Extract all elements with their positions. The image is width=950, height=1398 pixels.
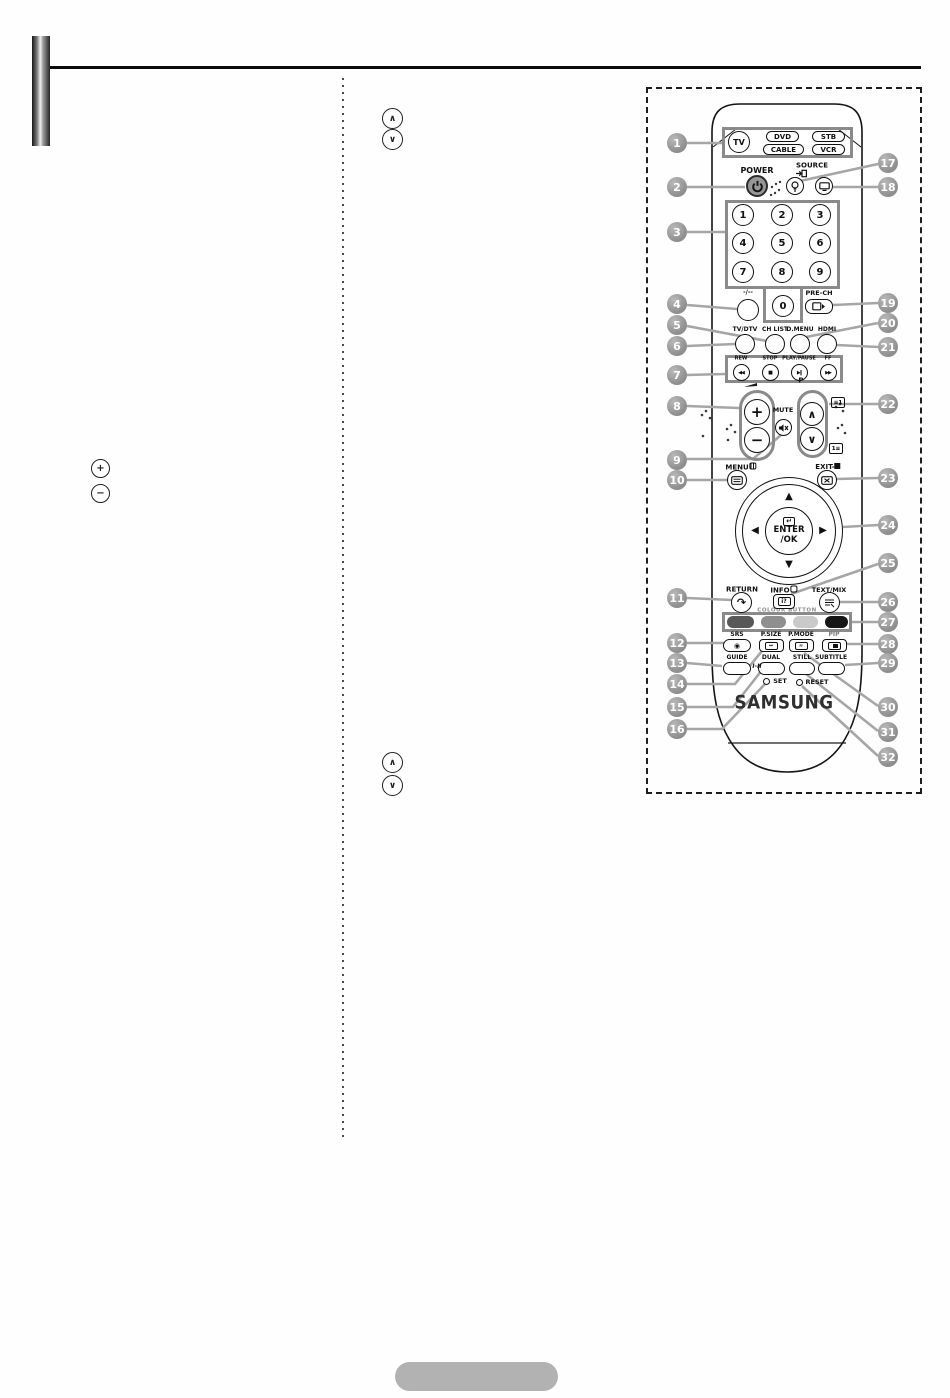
callout-24: 24: [878, 515, 898, 535]
callout-20: 20: [878, 313, 898, 333]
transport-button-rew[interactable]: ◀◀: [733, 364, 750, 381]
colour-button-3[interactable]: [825, 616, 848, 628]
return-button[interactable]: ↷: [731, 592, 752, 613]
set-label: SET: [773, 678, 787, 685]
mute-button[interactable]: [775, 419, 792, 436]
callout-16: 16: [667, 719, 687, 739]
dpad-left-icon[interactable]: ◀: [751, 526, 759, 536]
callout-13: 13: [667, 653, 687, 673]
dash-label: -/--: [743, 290, 753, 296]
manual-page: ∧ ∨ ∧ ∨ + −: [0, 0, 950, 1398]
fn1-label-3: PIP: [828, 632, 839, 638]
mode-label-3: HDMI: [818, 327, 836, 333]
source-label: SOURCE: [796, 163, 828, 178]
set-hole[interactable]: [763, 678, 770, 685]
source-button[interactable]: [815, 177, 833, 195]
channel-down-button[interactable]: ∨: [800, 427, 824, 451]
callout-1: 1: [667, 133, 687, 153]
fn-button-srs[interactable]: ◉: [723, 639, 751, 652]
digit-6-button[interactable]: 6: [809, 232, 831, 254]
callout-3: 3: [667, 222, 687, 242]
colour-button-2[interactable]: [793, 616, 818, 628]
fn-button-p-mode[interactable]: ≈: [789, 639, 814, 652]
menu-screen-icon: [731, 476, 743, 485]
fn2-label-2: STILL: [793, 655, 811, 661]
mode-button-ch-list[interactable]: [765, 334, 785, 354]
samsung-logo: SAMSUNG: [734, 694, 833, 712]
info-screen-icon: i?: [778, 597, 791, 606]
digit-8-button[interactable]: 8: [771, 261, 793, 283]
callout-32: 32: [878, 747, 898, 767]
pre-ch-label: PRE-CH: [805, 290, 832, 297]
device-button-cable[interactable]: CABLE: [763, 144, 804, 155]
mode-button-d-menu[interactable]: [790, 334, 810, 354]
teletext-mix-icon: [824, 598, 835, 608]
callout-19: 19: [878, 293, 898, 313]
device-button-dvd[interactable]: DVD: [766, 131, 799, 142]
page-index-teletext-icon: 1≡: [829, 443, 843, 454]
colour-button-0[interactable]: [727, 616, 754, 628]
callout-26: 26: [878, 592, 898, 612]
callout-10: 10: [667, 470, 687, 490]
callout-11: 11: [667, 588, 687, 608]
fn-button-pip[interactable]: [822, 639, 847, 652]
dpad-up-icon[interactable]: ▲: [785, 492, 793, 502]
info-page-icon: [791, 586, 798, 593]
dash-button[interactable]: [737, 299, 759, 321]
exit-box-icon: [835, 463, 841, 469]
pre-ch-button[interactable]: [805, 299, 833, 314]
transport-label-3: FF: [825, 357, 832, 362]
digit-2-button[interactable]: 2: [771, 204, 793, 226]
power-icon: [751, 180, 764, 193]
text-mix-button[interactable]: [819, 592, 840, 613]
callout-30: 30: [878, 697, 898, 717]
p-mode-icon: ≈: [795, 642, 808, 650]
page-up-teletext-icon: ≡1: [831, 397, 845, 408]
volume-up-button[interactable]: +: [744, 399, 770, 425]
callout-23: 23: [878, 468, 898, 488]
exit-screen-icon: [821, 476, 833, 485]
source-screen-icon: [819, 182, 830, 191]
callout-18: 18: [878, 177, 898, 197]
digit-4-button[interactable]: 4: [732, 232, 754, 254]
fn-button-p-size[interactable]: ↔: [759, 639, 784, 652]
dual-icon-label: I-II: [752, 664, 761, 670]
callout-28: 28: [878, 634, 898, 654]
callout-14: 14: [667, 674, 687, 694]
transport-label-2: PLAY/PAUSE: [782, 357, 816, 362]
callout-21: 21: [878, 337, 898, 357]
dpad-right-icon[interactable]: ▶: [819, 526, 827, 536]
channel-p-label: P: [798, 378, 803, 385]
fn2-label-1: DUAL: [762, 655, 780, 661]
pip-icon: [828, 642, 841, 650]
bulb-icon: [790, 181, 800, 192]
colour-button-1[interactable]: [761, 616, 786, 628]
menu-bars-icon: [750, 463, 757, 470]
mode-label-1: CH LIST: [762, 327, 788, 333]
power-label: POWER: [740, 167, 773, 175]
callout-4: 4: [667, 294, 687, 314]
illumination-button[interactable]: [786, 177, 804, 195]
tv-mode-button[interactable]: TV: [728, 131, 750, 153]
callout-12: 12: [667, 633, 687, 653]
exit-button[interactable]: [817, 470, 837, 490]
source-arrow-icon: [796, 170, 807, 178]
transport-button-stop[interactable]: ■: [762, 364, 779, 381]
enter-ok-button[interactable]: ↵ ENTER /OK: [765, 507, 813, 555]
digit-7-button[interactable]: 7: [732, 261, 754, 283]
channel-up-button[interactable]: ∧: [800, 402, 824, 426]
callout-22: 22: [878, 394, 898, 414]
callout-7: 7: [667, 365, 687, 385]
menu-button[interactable]: [727, 470, 747, 490]
digit-1-button[interactable]: 1: [732, 204, 754, 226]
power-button[interactable]: [746, 175, 768, 197]
callout-29: 29: [878, 653, 898, 673]
fn2-label-3: SUBTITLE: [815, 655, 847, 661]
dpad-down-icon[interactable]: ▼: [785, 560, 793, 570]
fn-button-subtitle[interactable]: [818, 662, 845, 675]
callout-6: 6: [667, 336, 687, 356]
reset-hole[interactable]: [796, 679, 803, 686]
mode-label-2: D.MENU: [786, 327, 813, 333]
info-button[interactable]: i?: [773, 594, 795, 609]
fn1-label-1: P.SIZE: [761, 632, 782, 638]
callout-8: 8: [667, 396, 687, 416]
fn2-label-0: GUIDE: [726, 655, 747, 661]
enter-label-line2: /OK: [781, 536, 798, 546]
p-size-icon: ↔: [765, 642, 778, 650]
reset-label: RESET: [805, 679, 828, 686]
device-button-vcr[interactable]: VCR: [812, 144, 845, 155]
callout-17: 17: [878, 153, 898, 173]
digit-5-button[interactable]: 5: [771, 232, 793, 254]
callout-15: 15: [667, 697, 687, 717]
callout-25: 25: [878, 553, 898, 573]
transport-label-1: STOP: [763, 357, 778, 362]
fn1-label-0: SRS: [730, 632, 743, 638]
volume-down-button[interactable]: −: [744, 427, 770, 453]
transport-label-0: REW: [735, 357, 748, 362]
callout-27: 27: [878, 612, 898, 632]
callout-9: 9: [667, 450, 687, 470]
callout-2: 2: [667, 177, 687, 197]
mode-button-tv-dtv[interactable]: [735, 334, 755, 354]
callout-5: 5: [667, 315, 687, 335]
digit-9-button[interactable]: 9: [809, 261, 831, 283]
mode-button-hdmi[interactable]: [817, 334, 837, 354]
digit-3-button[interactable]: 3: [809, 204, 831, 226]
device-button-stb[interactable]: STB: [812, 131, 845, 142]
mode-label-0: TV/DTV: [733, 327, 758, 333]
fn-button-guide[interactable]: [723, 662, 751, 675]
digit-0-button[interactable]: 0: [772, 295, 794, 317]
mute-speaker-icon: [778, 423, 789, 433]
fn1-label-2: P.MODE: [788, 632, 814, 638]
transport-button-ff[interactable]: ▶▶: [820, 364, 837, 381]
callout-31: 31: [878, 722, 898, 742]
fn-button-still[interactable]: [789, 662, 815, 675]
mute-label: MUTE: [773, 407, 794, 414]
pre-ch-icon: [812, 302, 826, 311]
